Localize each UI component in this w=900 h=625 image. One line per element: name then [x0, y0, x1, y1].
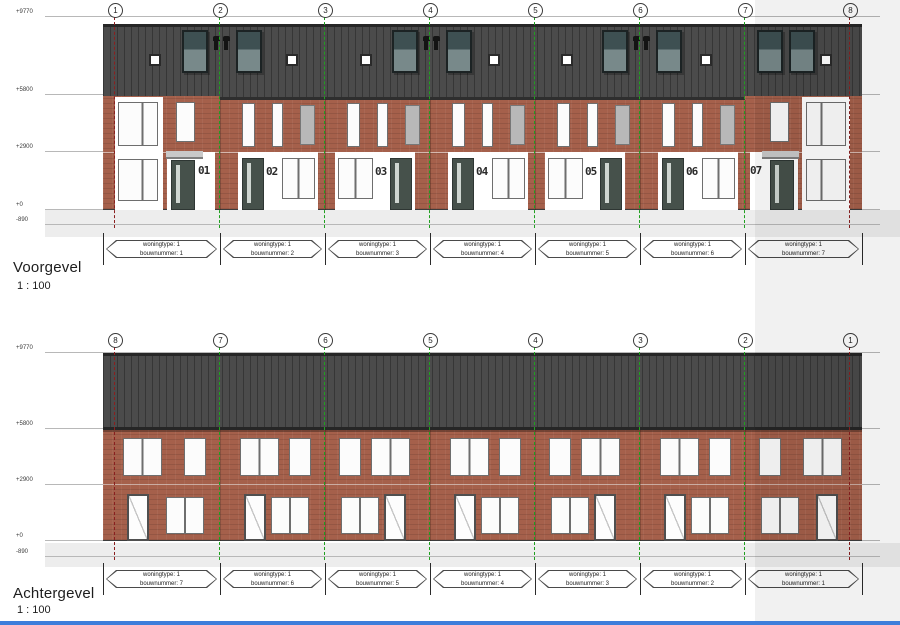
window	[761, 497, 799, 534]
window	[482, 103, 493, 147]
label-row-tick	[430, 233, 431, 265]
window	[377, 103, 388, 147]
label-box: woningtype: 1bouwnummer: 5	[538, 240, 637, 258]
grid-line	[114, 347, 115, 560]
level-line	[45, 556, 880, 557]
label-box-text: woningtype: 1bouwnummer: 3	[329, 241, 426, 257]
roof-window	[656, 30, 682, 73]
bouwnummer-label: bouwnummer: 5	[539, 251, 636, 259]
label-row-tick	[745, 563, 746, 595]
door-glazing	[605, 163, 609, 203]
window	[548, 158, 583, 199]
roof-window	[602, 30, 628, 73]
label-box-text: woningtype: 1bouwnummer: 1	[107, 241, 216, 257]
window	[341, 497, 379, 534]
bouwnummer-label: bouwnummer: 4	[434, 581, 531, 589]
house-number: 02	[266, 165, 277, 178]
grid-line	[534, 17, 535, 228]
front-door	[770, 160, 794, 210]
party-wall-joint	[430, 430, 431, 541]
label-row-tick	[640, 233, 641, 265]
bouwnummer-label: bouwnummer: 1	[749, 581, 858, 589]
level-label: +9770	[16, 345, 33, 351]
label-row-tick	[220, 233, 221, 265]
window	[338, 158, 373, 199]
label-box-text: woningtype: 1bouwnummer: 5	[539, 241, 636, 257]
grid-line	[849, 347, 850, 560]
grid-line	[744, 347, 745, 560]
party-wall-joint	[430, 100, 431, 210]
window	[551, 497, 589, 534]
panel-window	[300, 105, 315, 145]
label-row-tick	[745, 233, 746, 265]
roof-vent-stem	[434, 41, 438, 50]
bouwnummer-label: bouwnummer: 7	[107, 581, 216, 589]
label-row-tick	[103, 563, 104, 595]
level-label: +5800	[16, 421, 33, 427]
grid-bubble: 5	[423, 333, 438, 348]
party-wall-joint	[640, 100, 641, 210]
front-door	[171, 160, 195, 210]
door-glazing	[457, 163, 461, 203]
rooflight-square	[820, 54, 832, 66]
label-box-text: woningtype: 1bouwnummer: 7	[107, 571, 216, 587]
grid-bubble: 3	[633, 333, 648, 348]
label-box: woningtype: 1bouwnummer: 4	[433, 240, 532, 258]
window	[123, 438, 162, 476]
achtergevel-title: Achtergevel	[13, 585, 94, 602]
grid-line	[639, 17, 640, 228]
window	[692, 103, 703, 147]
grid-bubble: 6	[318, 333, 333, 348]
label-box-text: woningtype: 1bouwnummer: 7	[749, 241, 858, 257]
roof-window	[236, 30, 262, 73]
bouwnummer-label: bouwnummer: 2	[224, 251, 321, 259]
front-door	[662, 158, 684, 210]
grid-bubble: 7	[738, 3, 753, 18]
roof-vent-stem	[424, 41, 428, 50]
woningtype-label: woningtype: 1	[329, 242, 426, 250]
rear-door	[816, 494, 838, 541]
voorgevel-scale: 1 : 100	[17, 280, 51, 292]
level-label: +2900	[16, 477, 33, 483]
window	[709, 438, 731, 476]
woningtype-label: woningtype: 1	[224, 242, 321, 250]
label-row-tick	[862, 563, 863, 595]
house-number: 05	[585, 165, 596, 178]
grid-bubble: 7	[213, 333, 228, 348]
party-wall-joint	[640, 430, 641, 541]
grid-bubble: 3	[318, 3, 333, 18]
label-box: woningtype: 1bouwnummer: 1	[106, 240, 217, 258]
rear-door	[384, 494, 406, 541]
level-label: -890	[16, 217, 28, 223]
label-box-text: woningtype: 1bouwnummer: 4	[434, 571, 531, 587]
woningtype-label: woningtype: 1	[644, 242, 741, 250]
elevation-drawing-sheet: Voorgevel 1 : 100 Achtergevel 1 : 100 +9…	[0, 0, 900, 625]
roof-vent-stem	[634, 41, 638, 50]
level-line	[45, 224, 880, 225]
grid-bubble: 8	[108, 333, 123, 348]
window	[662, 103, 675, 147]
house-number: 04	[476, 165, 487, 178]
label-box-text: woningtype: 1bouwnummer: 4	[434, 241, 531, 257]
bottom-rule	[0, 621, 900, 625]
window	[289, 438, 311, 476]
front-door	[242, 158, 264, 210]
bouwnummer-label: bouwnummer: 3	[539, 581, 636, 589]
party-wall-joint	[220, 100, 221, 210]
panel-window	[720, 105, 735, 145]
grid-bubble: 1	[843, 333, 858, 348]
grid-line	[114, 17, 115, 228]
label-box-text: woningtype: 1bouwnummer: 5	[329, 571, 426, 587]
woningtype-label: woningtype: 1	[644, 572, 741, 580]
window	[271, 497, 309, 534]
label-box: woningtype: 1bouwnummer: 3	[538, 570, 637, 588]
woningtype-label: woningtype: 1	[107, 572, 216, 580]
front-door	[390, 158, 412, 210]
window	[118, 102, 158, 146]
level-label: -890	[16, 549, 28, 555]
label-row-tick	[862, 233, 863, 265]
rooflight-square	[561, 54, 573, 66]
door-canopy	[166, 151, 203, 159]
level-label: +5800	[16, 87, 33, 93]
window	[282, 158, 315, 199]
label-box-text: woningtype: 1bouwnummer: 1	[749, 571, 858, 587]
window	[450, 438, 489, 476]
level-label: +0	[16, 533, 23, 539]
level-label: +2900	[16, 144, 33, 150]
roof-window	[789, 30, 815, 73]
grid-bubble: 6	[633, 3, 648, 18]
label-row-tick	[430, 563, 431, 595]
roof-vent-stem	[224, 41, 228, 50]
label-box: woningtype: 1bouwnummer: 4	[433, 570, 532, 588]
window	[371, 438, 410, 476]
rooflight-square	[360, 54, 372, 66]
rear-door	[594, 494, 616, 541]
window	[499, 438, 521, 476]
rear-door	[664, 494, 686, 541]
woningtype-label: woningtype: 1	[749, 242, 858, 250]
woningtype-label: woningtype: 1	[329, 572, 426, 580]
house-number: 07	[750, 164, 761, 177]
bouwnummer-label: bouwnummer: 6	[644, 251, 741, 259]
window	[240, 438, 279, 476]
house-number: 03	[375, 165, 386, 178]
woningtype-label: woningtype: 1	[107, 242, 216, 250]
label-box: woningtype: 1bouwnummer: 7	[748, 240, 859, 258]
bouwnummer-label: bouwnummer: 3	[329, 251, 426, 259]
rear-door	[454, 494, 476, 541]
party-wall-joint	[745, 100, 746, 210]
rear-door	[244, 494, 266, 541]
grid-bubble: 4	[528, 333, 543, 348]
window	[481, 497, 519, 534]
grid-line	[639, 347, 640, 560]
window	[492, 158, 525, 199]
grid-line	[324, 17, 325, 228]
woningtype-label: woningtype: 1	[539, 572, 636, 580]
roof-vent-stem	[214, 41, 218, 50]
woningtype-label: woningtype: 1	[749, 572, 858, 580]
grid-bubble: 2	[213, 3, 228, 18]
front-door	[600, 158, 622, 210]
window	[549, 438, 571, 476]
label-box: woningtype: 1bouwnummer: 5	[328, 570, 427, 588]
label-box: woningtype: 1bouwnummer: 6	[643, 240, 742, 258]
window	[176, 102, 195, 142]
window	[166, 497, 204, 534]
window	[691, 497, 729, 534]
grid-line	[429, 17, 430, 228]
grid-line	[849, 17, 850, 228]
label-box-text: woningtype: 1bouwnummer: 2	[224, 241, 321, 257]
level-line	[45, 16, 880, 17]
grid-line	[534, 347, 535, 560]
grid-line	[219, 17, 220, 228]
panel-window	[615, 105, 630, 145]
label-row-tick	[535, 563, 536, 595]
panel-window	[510, 105, 525, 145]
label-box: woningtype: 1bouwnummer: 2	[223, 240, 322, 258]
label-row-tick	[535, 233, 536, 265]
grid-bubble: 4	[423, 3, 438, 18]
grid-line	[219, 347, 220, 560]
window	[660, 438, 699, 476]
label-row-tick	[640, 563, 641, 595]
roof	[103, 353, 862, 430]
level-label: +9770	[16, 9, 33, 15]
roof-window	[446, 30, 472, 73]
label-box-text: woningtype: 1bouwnummer: 6	[644, 241, 741, 257]
bouwnummer-label: bouwnummer: 2	[644, 581, 741, 589]
grid-bubble: 8	[843, 3, 858, 18]
door-glazing	[775, 165, 779, 203]
grid-bubble: 2	[738, 333, 753, 348]
window	[118, 159, 158, 201]
window	[452, 103, 465, 147]
label-box: woningtype: 1bouwnummer: 3	[328, 240, 427, 258]
party-wall-joint	[745, 430, 746, 541]
window	[702, 158, 735, 199]
party-wall-joint	[325, 100, 326, 210]
bouwnummer-label: bouwnummer: 7	[749, 251, 858, 259]
roof-vent-stem	[644, 41, 648, 50]
label-box-text: woningtype: 1bouwnummer: 3	[539, 571, 636, 587]
door-glazing	[247, 163, 251, 203]
window	[803, 438, 842, 476]
party-wall-joint	[220, 430, 221, 541]
achtergevel-scale: 1 : 100	[17, 604, 51, 616]
bouwnummer-label: bouwnummer: 6	[224, 581, 321, 589]
rear-door	[127, 494, 149, 541]
grid-bubble: 5	[528, 3, 543, 18]
roof-window	[182, 30, 208, 73]
window	[347, 103, 360, 147]
label-row-tick	[103, 233, 104, 265]
party-wall-joint	[325, 430, 326, 541]
bouwnummer-label: bouwnummer: 1	[107, 251, 216, 259]
bouwnummer-label: bouwnummer: 4	[434, 251, 531, 259]
woningtype-label: woningtype: 1	[539, 242, 636, 250]
front-door	[452, 158, 474, 210]
window	[759, 438, 781, 476]
label-box: woningtype: 1bouwnummer: 6	[223, 570, 322, 588]
woningtype-label: woningtype: 1	[224, 572, 321, 580]
roof-window	[757, 30, 783, 73]
label-box: woningtype: 1bouwnummer: 1	[748, 570, 859, 588]
label-row-tick	[220, 563, 221, 595]
window	[587, 103, 598, 147]
window	[272, 103, 283, 147]
window	[242, 103, 255, 147]
level-label: +0	[16, 202, 23, 208]
window	[184, 438, 206, 476]
panel-window	[405, 105, 420, 145]
door-canopy	[762, 151, 799, 159]
bouwnummer-label: bouwnummer: 5	[329, 581, 426, 589]
party-wall-joint	[535, 100, 536, 210]
grid-line	[324, 347, 325, 560]
door-glazing	[395, 163, 399, 203]
window	[806, 102, 846, 146]
label-box: woningtype: 1bouwnummer: 2	[643, 570, 742, 588]
grid-line	[744, 17, 745, 228]
woningtype-label: woningtype: 1	[434, 242, 531, 250]
label-row-tick	[325, 233, 326, 265]
grid-line	[429, 347, 430, 560]
house-number: 01	[198, 164, 209, 177]
grid-bubble: 1	[108, 3, 123, 18]
voorgevel-title: Voorgevel	[13, 259, 82, 276]
window	[557, 103, 570, 147]
window	[339, 438, 361, 476]
window	[581, 438, 620, 476]
door-glazing	[176, 165, 180, 203]
ground-band	[45, 543, 900, 567]
roof-window	[392, 30, 418, 73]
party-wall-joint	[535, 430, 536, 541]
label-box-text: woningtype: 1bouwnummer: 6	[224, 571, 321, 587]
rooflight-square	[488, 54, 500, 66]
label-box: woningtype: 1bouwnummer: 7	[106, 570, 217, 588]
rooflight-square	[149, 54, 161, 66]
rooflight-square	[286, 54, 298, 66]
door-glazing	[667, 163, 671, 203]
label-box-text: woningtype: 1bouwnummer: 2	[644, 571, 741, 587]
woningtype-label: woningtype: 1	[434, 572, 531, 580]
window	[806, 159, 846, 201]
label-row-tick	[325, 563, 326, 595]
house-number: 06	[686, 165, 697, 178]
floor-line	[103, 484, 862, 485]
rooflight-square	[700, 54, 712, 66]
window	[770, 102, 789, 142]
